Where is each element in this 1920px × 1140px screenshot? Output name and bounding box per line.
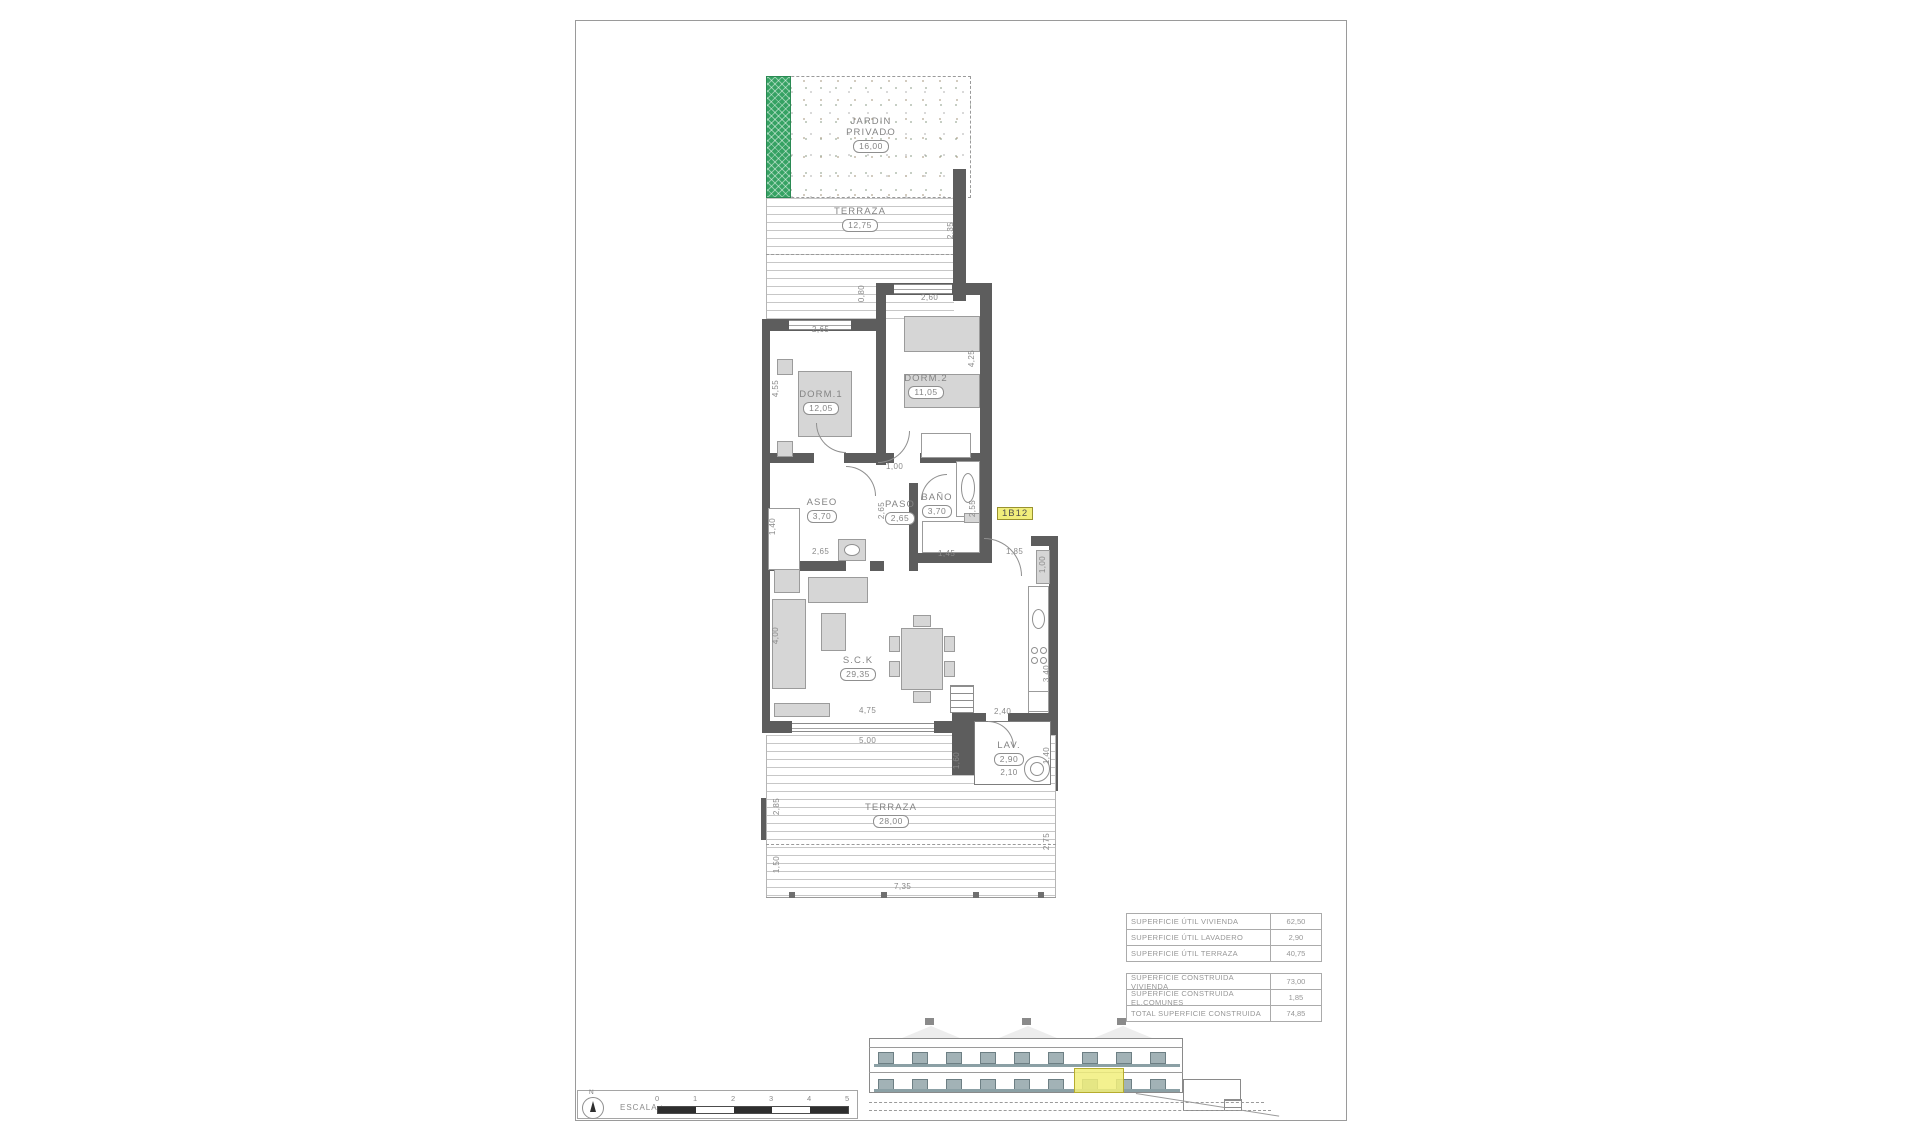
north-letter: N <box>589 1089 594 1096</box>
hob-burner <box>1040 647 1047 654</box>
post <box>1038 892 1044 898</box>
scale-tick: 4 <box>807 1094 811 1103</box>
useful-surface-table: SUPERFICIE ÚTIL VIVIENDA 62,50 SUPERFICI… <box>1126 913 1322 962</box>
dorm1-label: DORM.1 12,05 <box>786 389 856 415</box>
chair <box>889 636 900 652</box>
living-terrace-window <box>792 723 934 732</box>
aseo-label: ASEO 3,70 <box>787 497 857 523</box>
plan-sheet: JARDIN PRIVADO 16,00 TERRAZA 12,75 <box>575 20 1347 1121</box>
basin-bowl <box>844 544 860 556</box>
dim: 7,35 <box>894 882 911 891</box>
roof-gable <box>1094 1026 1152 1038</box>
terrace-dashed-line <box>766 254 954 255</box>
dim: 1,40 <box>768 518 777 535</box>
roof-gable <box>999 1026 1057 1038</box>
balcony-window <box>1116 1052 1132 1064</box>
hob-burner <box>1031 657 1038 664</box>
unit-number-tag: 1B12 <box>997 507 1033 520</box>
dim: 2,85 <box>772 798 781 815</box>
dim: 2,55 <box>968 500 977 517</box>
armchair <box>774 569 800 593</box>
garden-name: JARDIN PRIVADO <box>838 116 904 138</box>
chimney <box>1117 1018 1126 1025</box>
balcony-railing <box>874 1064 1180 1067</box>
dim: 2,35 <box>946 222 955 239</box>
chair <box>944 661 955 677</box>
scale-tick: 1 <box>693 1094 697 1103</box>
dim: 1,60 <box>952 752 961 769</box>
shower-exterior <box>1028 691 1049 712</box>
table-row: SUPERFICIE CONSTRUIDA VIVIENDA 73,00 <box>1127 974 1321 989</box>
door-arc <box>816 423 846 453</box>
balcony-window <box>1150 1052 1166 1064</box>
lav-label: LAV. 2,90 2,10 <box>974 740 1044 778</box>
terrace-edge <box>1055 735 1056 897</box>
scale-tick: 2 <box>731 1094 735 1103</box>
dim: 4,55 <box>771 380 780 397</box>
terrace-edge <box>766 735 767 897</box>
balcony-window <box>1048 1052 1064 1064</box>
garden-area-value: 16,00 <box>853 140 889 153</box>
wall <box>762 721 792 733</box>
table-row: SUPERFICIE ÚTIL VIVIENDA 62,50 <box>1127 914 1321 929</box>
dim: 1,50 <box>772 856 781 873</box>
terrace-left-edge <box>766 198 767 319</box>
balcony-window <box>1082 1052 1098 1064</box>
terrace-dashed-line <box>766 844 1056 845</box>
dim: 2,60 <box>921 293 938 302</box>
roof-gable <box>902 1026 960 1038</box>
dim: 2,65 <box>812 547 829 556</box>
wardrobe <box>921 433 971 458</box>
table-row: SUPERFICIE ÚTIL LAVADERO 2,90 <box>1127 929 1321 945</box>
dim: 1,45 <box>938 549 955 558</box>
dim: 2,75 <box>1042 833 1051 850</box>
dim: 2,40 <box>994 707 1011 716</box>
highlighted-unit <box>1074 1068 1124 1093</box>
lower-terrace-label: TERRAZA 28,00 <box>856 802 926 828</box>
scale-tick: 3 <box>769 1094 773 1103</box>
lav-dim: 2,10 <box>974 767 1044 778</box>
ground-dashed <box>869 1102 1264 1103</box>
hob-burner <box>1031 647 1038 654</box>
kitchen-sink <box>1032 609 1045 629</box>
post <box>973 892 979 898</box>
dim: 4,00 <box>771 627 780 644</box>
floor-line <box>869 1072 1183 1073</box>
door-arc <box>921 474 947 500</box>
table-row: SUPERFICIE ÚTIL TERRAZA 40,75 <box>1127 945 1321 961</box>
dim: 4,75 <box>859 706 876 715</box>
table-row: SUPERFICIE CONSTRUIDA EL.COMUNES 1,85 <box>1127 989 1321 1005</box>
dim: 1,40 <box>1042 747 1051 764</box>
terrace-bottom-edge <box>766 897 1056 898</box>
nightstand <box>777 441 793 457</box>
chimney <box>925 1018 934 1025</box>
sck-label: S.C.K 29,35 <box>823 655 893 681</box>
door-arc <box>846 466 876 496</box>
table-row: TOTAL SUPERFICIE CONSTRUIDA 74,85 <box>1127 1005 1321 1021</box>
garden-label: JARDIN PRIVADO 16,00 <box>838 116 904 153</box>
balcony-railing <box>874 1089 1180 1092</box>
eave-line <box>869 1047 1183 1048</box>
dim: 1,00 <box>1038 556 1047 573</box>
dim: 1,00 <box>886 462 903 471</box>
scale-tick: 5 <box>845 1094 849 1103</box>
entry-steps <box>950 685 974 713</box>
sofa <box>808 577 868 603</box>
tv-cabinet <box>774 703 830 717</box>
ground-dashed <box>869 1110 1271 1111</box>
dim: 4,25 <box>967 350 976 367</box>
entry-door-arc <box>984 538 1022 576</box>
chimney <box>1022 1018 1031 1025</box>
dim: 3,40 <box>1042 665 1051 682</box>
post <box>881 892 887 898</box>
dorm2-label: DORM.2 11,05 <box>891 373 961 399</box>
chair <box>913 615 931 627</box>
dining-table <box>901 628 943 690</box>
coffee-table <box>821 613 846 651</box>
scale-bar <box>657 1106 849 1114</box>
dim: 1,85 <box>1006 547 1023 556</box>
hedge-hatch <box>766 76 791 198</box>
nightstand <box>777 359 793 375</box>
dim: 2,65 <box>877 502 886 519</box>
dim: 0,80 <box>857 285 866 302</box>
balcony-window <box>912 1052 928 1064</box>
dim: 2,65 <box>812 325 829 334</box>
door-gap <box>814 453 844 463</box>
balcony-window <box>1014 1052 1030 1064</box>
wall <box>980 283 992 561</box>
hob-burner <box>1040 657 1047 664</box>
single-bed <box>904 316 980 352</box>
door-gap <box>846 561 870 571</box>
floor-plan-screenshot: JARDIN PRIVADO 16,00 TERRAZA 12,75 <box>0 0 1920 1140</box>
chair <box>913 691 931 703</box>
built-surface-table: SUPERFICIE CONSTRUIDA VIVIENDA 73,00 SUP… <box>1126 973 1322 1022</box>
north-needle <box>590 1101 596 1112</box>
dim: 5,00 <box>859 736 876 745</box>
balcony-window <box>946 1052 962 1064</box>
post <box>789 892 795 898</box>
chair <box>944 636 955 652</box>
scale-tick: 0 <box>655 1094 659 1103</box>
balcony-window <box>878 1052 894 1064</box>
upper-terrace-label: TERRAZA 12,75 <box>825 206 895 232</box>
balcony-window <box>980 1052 996 1064</box>
